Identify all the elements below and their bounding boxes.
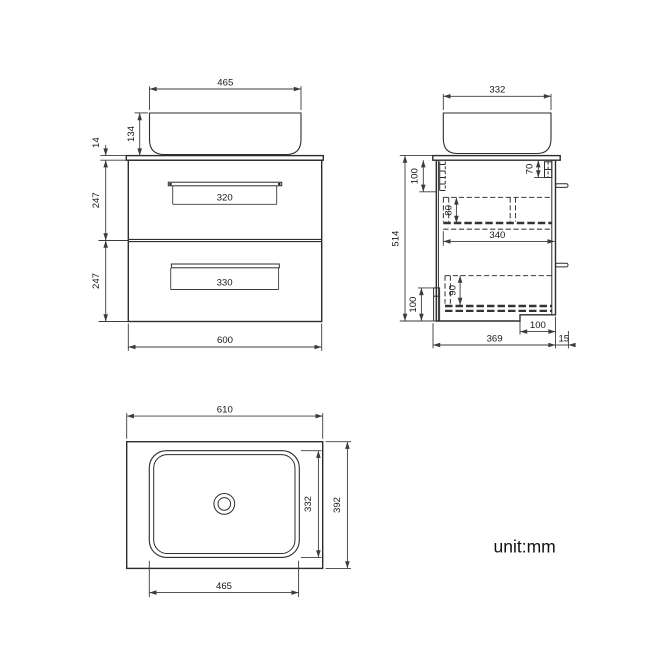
front-dim-basin-width: 465: [150, 78, 302, 110]
plan-dim-basin-width: 465: [149, 561, 298, 597]
front-basin: [150, 113, 302, 155]
plan-drain-inner: [218, 498, 231, 511]
side-overall-height-label: 514: [391, 230, 402, 247]
side-dimensions: 332 514 100 70 80: [391, 85, 575, 349]
plan-basin-outer: [149, 451, 299, 558]
plan-basin-width-label: 465: [216, 581, 232, 592]
side-right-bracket-height-label: 70: [525, 164, 536, 175]
vanity-technical-drawing: 465 134 14 247 247 320 3: [0, 0, 650, 650]
side-basin: [443, 113, 551, 154]
plan-dim-countertop-width: 610: [127, 405, 323, 439]
side-countertop: [433, 156, 560, 161]
front-dimensions: 465 134 14 247 247 320 3: [91, 78, 322, 351]
side-lower-slide-pin: [556, 263, 569, 267]
plan-view: 610 332 392 465: [127, 405, 351, 597]
front-countertop-thickness-label: 14: [91, 137, 102, 148]
front-basin-height-label: 134: [126, 125, 137, 142]
side-dim-upper-drawer-inner: 80: [444, 197, 457, 223]
side-cabinet-depth-label: 369: [487, 334, 503, 345]
plan-basin-depth-label: 332: [303, 496, 314, 512]
front-upper-handle: [168, 182, 281, 186]
plan-countertop-depth-label: 392: [332, 497, 343, 513]
plan-basin-inner: [154, 455, 295, 554]
front-lower-handle: [171, 264, 279, 268]
side-bottom-clearance-label: 100: [408, 297, 419, 313]
front-cabinet-width-label: 600: [217, 335, 233, 346]
plan-dim-countertop-depth: 392: [326, 442, 352, 569]
side-upper-drawer-hidden: [443, 197, 552, 229]
handle-screw-right: [278, 183, 280, 185]
front-view: 465 134 14 247 247 320 3: [91, 78, 323, 351]
side-dim-back-gap: 15: [556, 331, 575, 348]
front-basin-width-label: 465: [217, 78, 233, 89]
side-upper-slide-pin: [556, 184, 569, 188]
front-dim-upper-handle: 320: [173, 186, 277, 204]
side-basin-depth-label: 332: [489, 85, 505, 96]
side-dim-bottom-clearance: 100: [408, 288, 436, 321]
unit-note: unit:mm: [494, 537, 556, 557]
front-dim-cabinet-width: 600: [128, 324, 321, 351]
front-dim-left-chain: 14 247 247: [91, 137, 128, 322]
side-dim-top-bracket: 100: [410, 160, 436, 192]
side-dim-drawer-depth: 340: [443, 230, 554, 246]
plan-countertop-width-label: 610: [217, 405, 233, 416]
side-lower-drawer-inner-label: 90: [447, 285, 458, 296]
side-top-left-bracket: [440, 162, 446, 191]
plan-outline: [127, 442, 323, 569]
front-drawer-divider: [128, 239, 321, 241]
side-dim-basin-depth: 332: [443, 85, 551, 110]
side-top-bracket-height-label: 100: [410, 168, 421, 184]
front-upper-handle-width-label: 320: [217, 192, 233, 203]
plan-dim-basin-depth: 332: [301, 451, 322, 558]
plan-drain-outer: [214, 494, 235, 515]
side-back-gap-label: 15: [558, 334, 569, 345]
side-dim-right-bracket: 70: [525, 160, 545, 177]
side-bottom-recess-label: 100: [530, 320, 546, 331]
front-dim-lower-handle: 330: [171, 268, 279, 290]
front-dim-basin-height: 134: [126, 113, 148, 156]
drawing-page: 465 134 14 247 247 320 3: [0, 0, 650, 650]
front-outline: [126, 113, 323, 322]
front-upper-drawer-height-label: 247: [91, 192, 102, 208]
side-top-right-bracket: [545, 162, 552, 178]
side-dim-bottom-recess: 100: [520, 317, 556, 335]
side-lower-drawer-hidden: [445, 276, 552, 311]
side-upper-drawer-inner-label: 80: [444, 205, 455, 216]
front-lower-handle-width-label: 330: [217, 277, 233, 288]
side-drawer-depth-label: 340: [489, 230, 505, 241]
front-lower-drawer-height-label: 247: [91, 273, 102, 289]
side-dim-lower-drawer-inner: 90: [447, 276, 460, 305]
handle-screw-left: [169, 183, 171, 185]
front-cabinet: [128, 160, 321, 321]
side-view: 332 514 100 70 80: [391, 85, 575, 349]
